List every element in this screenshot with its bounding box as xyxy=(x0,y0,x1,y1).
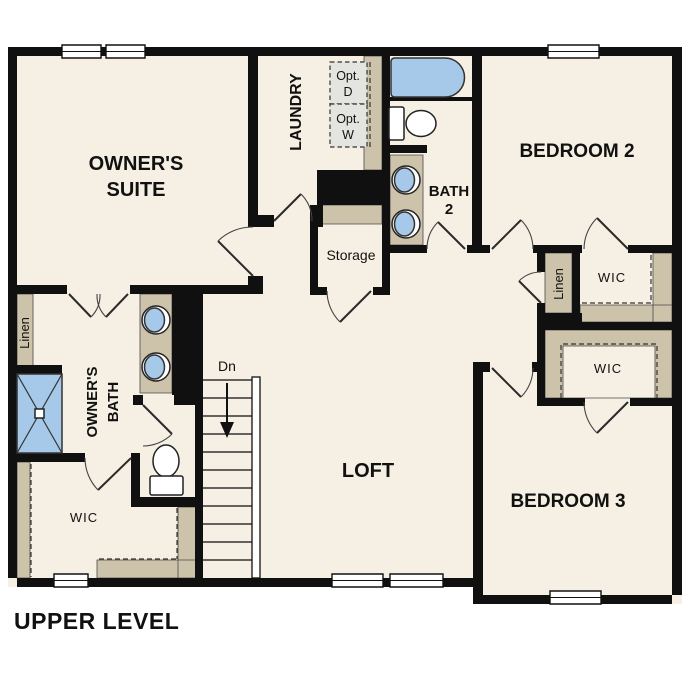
owners-toilet-tank xyxy=(150,476,183,495)
storage-shelf xyxy=(318,205,382,224)
bathtub xyxy=(391,58,465,97)
shower xyxy=(17,374,62,453)
loft-label: LOFT xyxy=(342,460,394,482)
wic-owners-left-shelf xyxy=(17,462,30,578)
owners-sink-2-basin xyxy=(145,355,165,379)
linen-hall-label: Linen xyxy=(551,268,566,300)
storage-label: Storage xyxy=(326,247,375,263)
bath2-sink-1-basin xyxy=(395,168,415,192)
owners-suite-label-line1: OWNER'S xyxy=(89,153,184,175)
bath2-label-line2: 2 xyxy=(445,201,453,218)
page-title: UPPER LEVEL xyxy=(14,608,179,634)
laundry-label: LAUNDRY xyxy=(288,73,305,151)
wic-bedroom3-label: WIC xyxy=(594,361,622,376)
wic-bedroom2-label: WIC xyxy=(598,270,626,285)
bedroom3-label: BEDROOM 3 xyxy=(510,491,625,512)
owners-bath-label-line1: OWNER'S xyxy=(84,366,101,437)
opt-dryer-label-line1: Opt. xyxy=(336,69,360,83)
floor-plan-drawing: OWNER'S SUITE LAUNDRY Opt. D Opt. W BATH… xyxy=(0,0,687,687)
floor-plan: OWNER'S SUITE LAUNDRY Opt. D Opt. W BATH… xyxy=(0,0,687,687)
stair-railing xyxy=(252,377,260,578)
bedroom2-label: BEDROOM 2 xyxy=(519,141,634,162)
bath2-label-line1: BATH xyxy=(429,183,470,200)
opt-washer-label-line2: W xyxy=(342,128,354,142)
owners-bath-label-line2: BATH xyxy=(105,382,122,423)
shower-drain xyxy=(35,409,44,418)
opt-washer-label-line1: Opt. xyxy=(336,112,360,126)
owners-suite-label-line2: SUITE xyxy=(107,179,166,201)
bath2-toilet-tank xyxy=(389,107,404,140)
bath2-sink-2-basin xyxy=(395,212,415,236)
wic-owners-label: WIC xyxy=(70,510,98,525)
bath2-toilet-bowl xyxy=(406,111,436,137)
linen-owners-label: Linen xyxy=(17,317,32,349)
owners-toilet-bowl xyxy=(153,445,179,477)
stairs-dn-label: Dn xyxy=(218,358,236,374)
opt-dryer-label-line2: D xyxy=(343,85,352,99)
owners-sink-1-basin xyxy=(145,308,165,332)
